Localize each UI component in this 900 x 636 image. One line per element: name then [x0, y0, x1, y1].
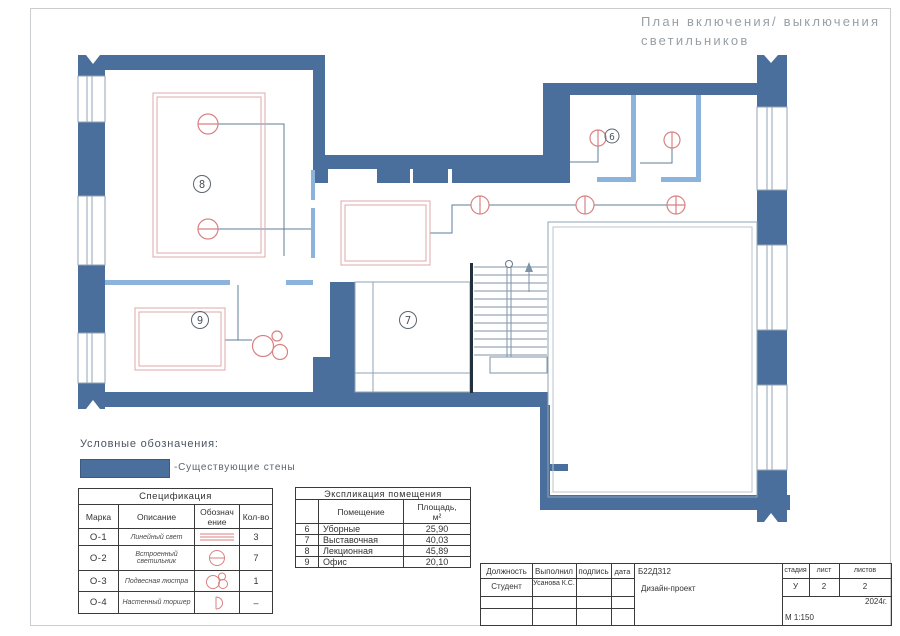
drawing-sheet: План включения/ выключения светильников: [0, 0, 900, 636]
room-number: 6: [296, 524, 319, 535]
svg-text:6: 6: [609, 132, 615, 143]
stamp-col-position: Должность: [481, 567, 532, 576]
walls-existing: [78, 55, 790, 522]
room-area: 20,10: [404, 557, 471, 568]
specification-table: Спецификация Марка Описание Обознач ение…: [78, 488, 273, 614]
stamp-col-date: дата: [611, 567, 634, 576]
spec-row: О-1 Линейный свет 3: [79, 529, 273, 546]
stamp-sheet-value: 2: [809, 582, 839, 591]
room-outlines: [355, 222, 757, 497]
stamp-scale: М 1:150: [785, 613, 845, 622]
stamp-role: Студент: [481, 582, 532, 591]
room-number: 7: [296, 535, 319, 546]
spec-col-qty: Кол-во: [240, 505, 273, 529]
spec-title: Спецификация: [79, 489, 273, 505]
legend-heading: Условные обозначения:: [80, 438, 219, 450]
stamp-sheets-value: 2: [839, 582, 891, 591]
spec-desc: Подвесная люстра: [119, 571, 195, 592]
title-block: Должность Выполнил подпись дата Б22Д312 …: [480, 563, 892, 626]
spec-qty: 1: [240, 571, 273, 592]
room-badge-7: 7: [400, 312, 417, 329]
room-name: Офис: [319, 557, 404, 568]
recessed-light-icon: [198, 114, 218, 134]
stairs: [470, 261, 547, 394]
existing-wall-label: -Существующие стены: [174, 462, 296, 473]
recessed-light-icon: [471, 196, 489, 214]
spec-desc: Встроенный светильник: [119, 546, 195, 571]
room-badge-6: 6: [605, 129, 619, 143]
spec-mark: О-2: [79, 546, 119, 571]
existing-wall-swatch: [80, 459, 170, 478]
expl-col-room: Помещение: [319, 500, 404, 524]
spec-qty: –: [240, 592, 273, 614]
room-name: Уборные: [319, 524, 404, 535]
room-number: 8: [296, 546, 319, 557]
svg-text:8: 8: [199, 179, 205, 191]
explication-row: 7 Выставочная 40,03: [296, 535, 471, 546]
spec-mark: О-4: [79, 592, 119, 614]
recessed-light-icon: [576, 196, 594, 214]
wall-sconce-icon: [210, 594, 224, 612]
room-number: 9: [296, 557, 319, 568]
expl-col-area: Площадь, м²: [404, 500, 471, 524]
linear-lights: [135, 93, 430, 370]
recessed-light-icon: [590, 130, 606, 146]
explication-row: 9 Офис 20,10: [296, 557, 471, 568]
room-name: Выставочная: [319, 535, 404, 546]
stamp-project-name: Дизайн-проект: [641, 584, 761, 593]
recessed-light-icon: [198, 219, 218, 239]
spec-desc: Линейный свет: [119, 529, 195, 546]
spec-mark: О-3: [79, 571, 119, 592]
svg-text:7: 7: [405, 315, 411, 327]
stamp-year: 2024г.: [821, 597, 887, 606]
room-area: 40,03: [404, 535, 471, 546]
spec-desc: Настенный торшер: [119, 592, 195, 614]
chandelier-icon: [203, 571, 231, 591]
room-badge-9: 9: [192, 312, 209, 329]
stamp-col-signature: подпись: [576, 567, 611, 576]
recessed-light-icon: [664, 132, 680, 148]
room-area: 25,90: [404, 524, 471, 535]
spec-col-mark: Марка: [79, 505, 119, 529]
stamp-author-name: Усанова К.С.: [532, 580, 576, 587]
spec-row: О-2 Встроенный светильник 7: [79, 546, 273, 571]
explication-table: Экспликация помещения Помещение Площадь,…: [295, 487, 471, 568]
spec-col-desc: Описание: [119, 505, 195, 529]
spec-row: О-4 Настенный торшер –: [79, 592, 273, 614]
stamp-col-stage: стадия: [782, 567, 809, 574]
linear-light-icon: [197, 531, 237, 543]
svg-text:9: 9: [197, 315, 203, 327]
room-name: Лекционная: [319, 546, 404, 557]
explication-row: 6 Уборные 25,90: [296, 524, 471, 535]
spec-mark: О-1: [79, 529, 119, 546]
expl-col-num: [296, 500, 319, 524]
stamp-stage-value: У: [782, 582, 809, 591]
wall-notches: [86, 55, 778, 522]
stamp-group-code: Б22Д312: [638, 567, 728, 576]
recessed-light-icon: [207, 548, 227, 568]
explication-title: Экспликация помещения: [296, 488, 471, 500]
chandelier-icon: [253, 331, 288, 360]
windows: [78, 76, 787, 470]
stamp-col-sheet: лист: [809, 567, 839, 574]
linear-light-room9: [135, 308, 225, 370]
spec-col-symbol: Обознач ение: [195, 505, 240, 529]
room-badge-8: 8: [194, 176, 211, 193]
spec-qty: 7: [240, 546, 273, 571]
spec-qty: 3: [240, 529, 273, 546]
explication-row: 8 Лекционная 45,89: [296, 546, 471, 557]
linear-light-corridor: [341, 201, 430, 265]
recessed-light-icon: [667, 196, 685, 214]
stamp-col-sheets: листов: [839, 567, 891, 574]
stair-start-marker: [506, 261, 513, 268]
room-area: 45,89: [404, 546, 471, 557]
spec-row: О-3 Подвесная люстра 1: [79, 571, 273, 592]
stamp-col-performed: Выполнил: [532, 567, 576, 576]
